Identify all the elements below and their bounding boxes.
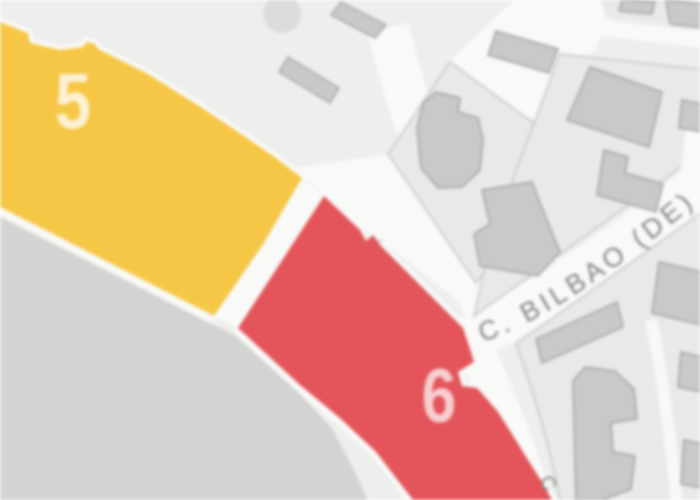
svg-text:5: 5 xyxy=(55,58,91,145)
svg-text:6: 6 xyxy=(422,353,457,438)
